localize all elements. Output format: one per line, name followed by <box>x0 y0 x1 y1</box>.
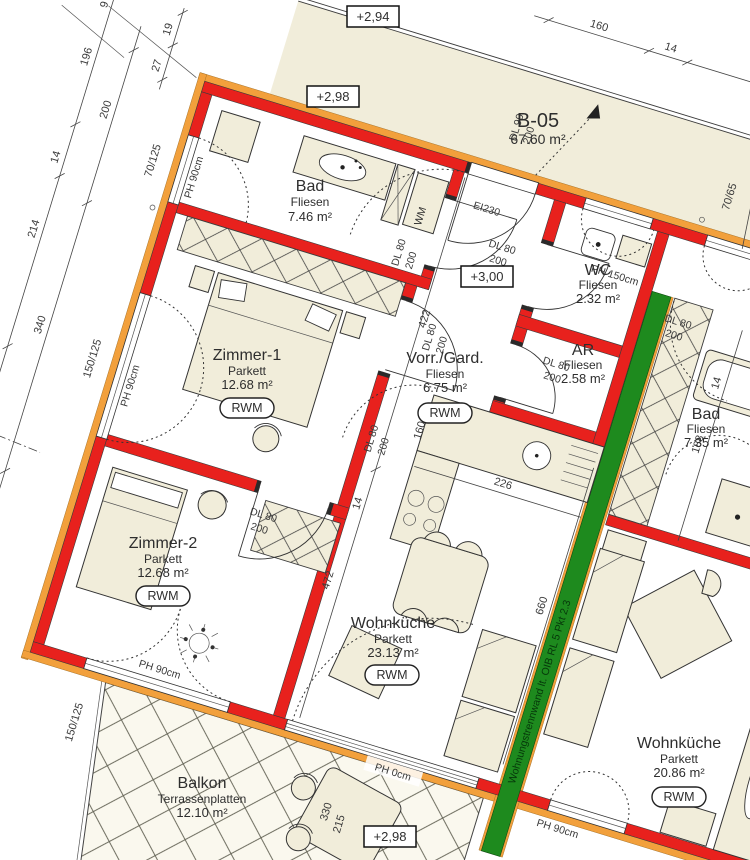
unit-label: B-05 67.60 m² <box>510 110 566 147</box>
svg-text:+2,94: +2,94 <box>357 9 390 24</box>
floor-plan-canvas: Wohnungstrennwand lt. OIB RL 5 Pkt 2.3 W… <box>0 0 750 860</box>
svg-text:Zimmer-1: Zimmer-1 <box>213 347 282 364</box>
svg-text:6.75 m²: 6.75 m² <box>423 380 468 395</box>
svg-text:200: 200 <box>542 370 562 387</box>
svg-text:67.60 m²: 67.60 m² <box>510 131 566 147</box>
svg-text:70/125: 70/125 <box>143 143 164 179</box>
svg-text:RWM: RWM <box>663 790 694 804</box>
svg-text:Vorr./Gard.: Vorr./Gard. <box>406 350 483 367</box>
rotated-plan: Wohnungstrennwand lt. OIB RL 5 Pkt 2.3 W… <box>0 0 750 860</box>
room-label-wohnkueche2: Wohnküche Parkett 20.86 m² <box>637 735 721 780</box>
svg-text:196: 196 <box>78 46 95 67</box>
svg-text:160: 160 <box>589 18 610 35</box>
svg-text:20.86 m²: 20.86 m² <box>653 765 705 780</box>
svg-text:Parkett: Parkett <box>144 552 183 566</box>
svg-text:23.13 m²: 23.13 m² <box>367 645 419 660</box>
svg-text:+2,98: +2,98 <box>374 829 407 844</box>
rwm-badge-wohnkueche: RWM <box>365 665 419 685</box>
svg-text:14: 14 <box>48 149 63 164</box>
room-label-vorr: Vorr./Gard. Fliesen 6.75 m² <box>406 350 483 395</box>
svg-text:7.46 m²: 7.46 m² <box>288 209 333 224</box>
svg-text:Fliesen: Fliesen <box>687 422 726 436</box>
svg-text:12.68 m²: 12.68 m² <box>221 377 273 392</box>
svg-text:12.10 m²: 12.10 m² <box>176 805 228 820</box>
rwm-badge-zimmer1: RWM <box>220 398 274 418</box>
svg-text:Fliesen: Fliesen <box>426 367 465 381</box>
svg-text:WC: WC <box>585 262 612 279</box>
svg-text:Fliesen: Fliesen <box>579 278 618 292</box>
svg-text:Parkett: Parkett <box>660 752 699 766</box>
svg-text:RWM: RWM <box>147 589 178 603</box>
svg-text:Bad: Bad <box>692 406 720 423</box>
svg-text:+3,00: +3,00 <box>471 269 504 284</box>
svg-text:660: 660 <box>534 595 551 616</box>
svg-text:Fliesen: Fliesen <box>564 358 603 372</box>
svg-text:9: 9 <box>98 0 111 9</box>
svg-text:EI230: EI230 <box>472 200 502 220</box>
svg-text:200: 200 <box>98 99 115 120</box>
level-marker-bottom: +2,98 <box>364 826 416 847</box>
svg-text:340: 340 <box>32 314 49 335</box>
svg-text:Fliesen: Fliesen <box>291 195 330 209</box>
svg-text:RWM: RWM <box>376 668 407 682</box>
svg-text:+2,98: +2,98 <box>317 89 350 104</box>
svg-text:Balkon: Balkon <box>178 775 227 792</box>
svg-text:B-05: B-05 <box>517 110 559 132</box>
level-marker-hall: +3,00 <box>461 266 513 287</box>
svg-text:19: 19 <box>161 22 176 37</box>
level-marker-upper-left: +2,98 <box>307 86 359 107</box>
plant-icon <box>174 618 224 668</box>
svg-text:7.35 m²: 7.35 m² <box>684 435 729 450</box>
svg-text:2.58 m²: 2.58 m² <box>561 371 606 386</box>
rwm-badge-zimmer2: RWM <box>136 586 190 606</box>
svg-text:2.32 m²: 2.32 m² <box>576 291 621 306</box>
svg-text:Terrassenplatten: Terrassenplatten <box>158 792 247 806</box>
rwm-badge-vorr: RWM <box>418 403 472 423</box>
svg-text:27: 27 <box>150 58 165 73</box>
svg-text:14: 14 <box>350 496 365 511</box>
svg-text:214: 214 <box>26 218 43 239</box>
rwm-badge-wohnkueche2: RWM <box>652 787 706 807</box>
svg-text:200: 200 <box>375 436 392 456</box>
svg-text:150/125: 150/125 <box>81 338 104 380</box>
floorplan-page: Wohnungstrennwand lt. OIB RL 5 Pkt 2.3 W… <box>0 0 750 860</box>
svg-text:200: 200 <box>403 250 420 270</box>
svg-text:Wohnküche: Wohnküche <box>351 615 435 632</box>
room-label-bad1: Bad Fliesen 7.46 m² <box>288 178 333 224</box>
level-marker-top: +2,94 <box>347 6 399 27</box>
svg-text:150/125: 150/125 <box>63 701 86 743</box>
svg-text:RWM: RWM <box>231 401 262 415</box>
svg-text:Bad: Bad <box>296 178 324 195</box>
svg-text:AR: AR <box>572 342 594 359</box>
svg-text:14: 14 <box>663 41 678 56</box>
svg-text:Wohnküche: Wohnküche <box>637 735 721 752</box>
svg-text:Parkett: Parkett <box>374 632 413 646</box>
room-label-bad2: Bad Fliesen 7.35 m² <box>684 406 729 450</box>
svg-text:12.68 m²: 12.68 m² <box>137 565 189 580</box>
svg-text:Parkett: Parkett <box>228 364 267 378</box>
svg-text:RWM: RWM <box>429 406 460 420</box>
svg-text:Zimmer-2: Zimmer-2 <box>129 535 198 552</box>
